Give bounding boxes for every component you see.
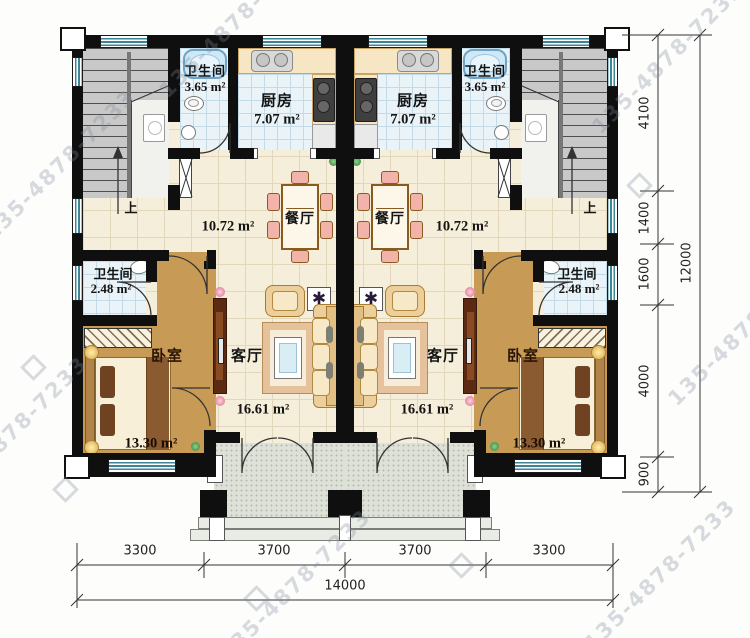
dim-right-5: 900: [638, 462, 653, 487]
floor-plan-canvas: ✱: [0, 0, 750, 638]
room-area: 13.30 m²: [125, 436, 178, 453]
wall-stair-bath: [510, 35, 522, 122]
flower-pot: [465, 287, 475, 297]
porch-column: [463, 490, 490, 517]
dim-bottom-1: 3300: [123, 544, 156, 559]
room-area: 2.48 m²: [91, 281, 132, 297]
flower-pot: [465, 396, 475, 406]
room-label: 餐厅: [375, 208, 405, 228]
wall-living-bottom-a: [450, 432, 476, 443]
dim-bottom-3: 3700: [398, 544, 431, 559]
wall-bath-bottom: [490, 148, 522, 159]
wall-kitchen-bottom-b: [354, 148, 374, 159]
room-label: 卫生间: [557, 264, 596, 283]
coffee-table-top: [393, 343, 411, 373]
room-label: 卫生间: [184, 61, 226, 80]
fridge: [354, 124, 378, 149]
wall-kitchen-bottom-a: [436, 148, 460, 159]
washer-door: [528, 121, 542, 135]
room-label: 卧室: [151, 345, 183, 366]
room-label: 厨房: [261, 90, 293, 111]
dining-chair: [357, 193, 370, 211]
dim-right-3: 1600: [638, 257, 653, 290]
porch-column-center-half: [345, 490, 362, 517]
armchair-cushion: [392, 291, 418, 311]
center-column-base: [339, 515, 351, 541]
stair-up-label: 上: [583, 198, 596, 217]
dining-chair: [410, 221, 423, 239]
sofa-pillow: [357, 362, 364, 379]
dining-chair: [381, 171, 399, 184]
unit-right: ✱: [0, 0, 690, 638]
room-area: 10.72 m²: [202, 219, 255, 236]
room-label: 客厅: [231, 345, 263, 366]
dim-bottom-4: 3300: [532, 544, 565, 559]
toilet-seat: [491, 99, 502, 107]
room-area: 3.65 m²: [465, 79, 506, 95]
room-label: 卧室: [507, 345, 539, 366]
stair-rail: [559, 52, 563, 198]
bed-headboard: [595, 355, 605, 450]
bedside-lamp: [591, 345, 606, 360]
room-area: 16.61 m²: [401, 402, 454, 419]
tv: [466, 338, 472, 364]
room-label: 餐厅: [285, 208, 315, 228]
dim-right-2: 1400: [638, 201, 653, 234]
room-area: 2.48 m²: [559, 281, 600, 297]
bath-sink: [494, 125, 509, 140]
window: [607, 57, 618, 87]
stove-burner: [360, 82, 373, 95]
dim-right-1: 4100: [638, 96, 653, 129]
window: [514, 459, 582, 473]
window: [607, 265, 618, 301]
stair-up-label: 上: [124, 198, 137, 217]
wall-suite-top-b: [474, 250, 483, 261]
wall-party: [345, 35, 354, 443]
sofa-pillow: [357, 326, 364, 343]
room-area: 3.65 m²: [185, 79, 226, 95]
dim-bottom-total: 14000: [324, 579, 365, 594]
bed-pillow: [575, 366, 590, 398]
dining-chair: [357, 221, 370, 239]
room-label: 卫生间: [93, 264, 132, 283]
room-label: 客厅: [427, 345, 459, 366]
sink-basin: [420, 53, 434, 67]
column-base: [465, 517, 481, 541]
window: [542, 35, 590, 48]
room-area: 13.30 m²: [513, 436, 566, 453]
corner-pier: [604, 27, 630, 51]
room-label: 厨房: [397, 90, 429, 111]
bed-pillow: [575, 404, 590, 436]
room-area: 16.61 m²: [237, 402, 290, 419]
porch-floor: [345, 443, 476, 517]
sink-basin: [402, 53, 416, 67]
dining-chair: [410, 193, 423, 211]
dim-right-4: 4000: [638, 364, 653, 397]
dim-bottom-2: 3700: [257, 544, 290, 559]
wall-smallbath-bottom: [533, 315, 618, 326]
room-area: 7.07 m²: [390, 112, 435, 129]
room-area: 7.07 m²: [254, 112, 299, 129]
plant-dot: [490, 442, 499, 451]
stove-burner: [360, 100, 373, 113]
wall-wood-stub: [474, 261, 486, 269]
room-area: 10.72 m²: [436, 219, 489, 236]
dining-chair: [381, 250, 399, 263]
window: [607, 198, 618, 234]
wall-living-bottom-b: [345, 432, 377, 443]
wall-stair-stub: [510, 185, 522, 210]
wall-bath-kitchen: [452, 35, 462, 150]
corner-pier: [600, 455, 626, 479]
room-label: 卫生间: [464, 61, 506, 80]
dim-right-total: 12000: [680, 242, 695, 283]
window: [368, 35, 428, 48]
wall-smallbath-right: [533, 250, 544, 282]
